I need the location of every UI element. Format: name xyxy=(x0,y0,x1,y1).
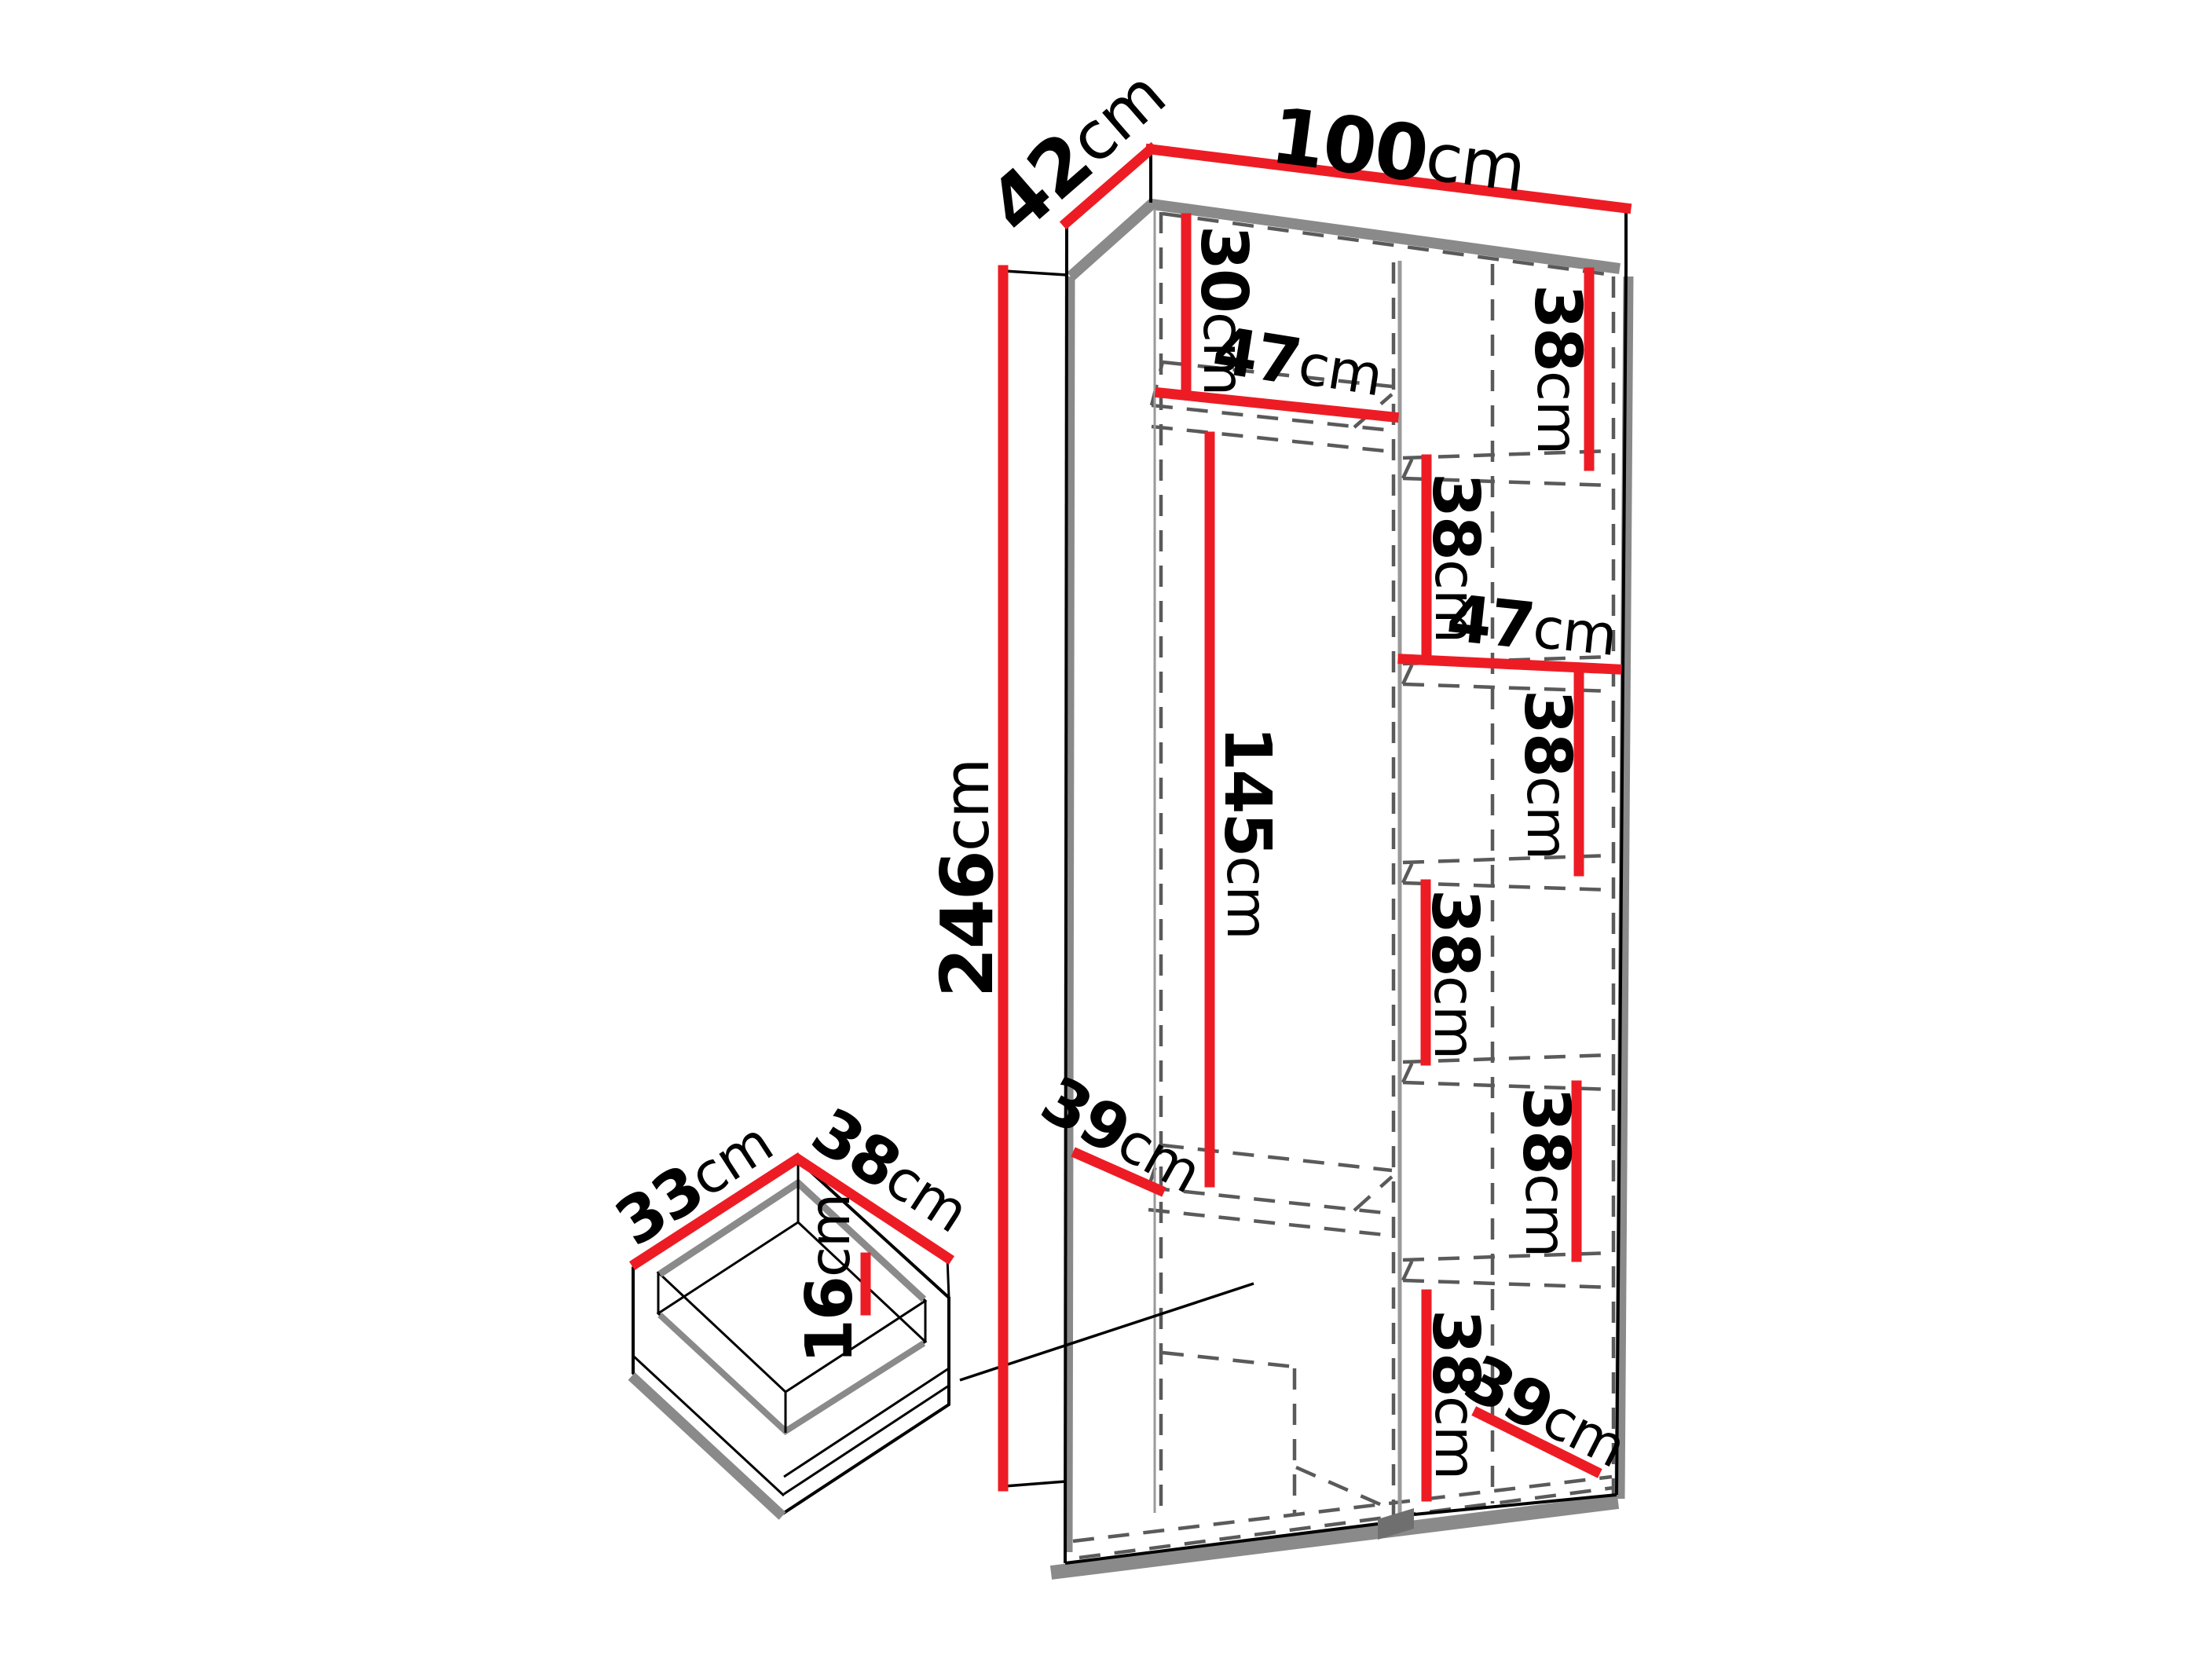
drawer-slot-diag xyxy=(1296,1467,1389,1508)
wardrobe-dimension-diagram: 42cm 100cm 246cm 30cm 47cm 145cm 39cm 38… xyxy=(0,0,2212,1659)
label-height-246: 246cm xyxy=(925,759,1009,998)
label-hanging-height-145: 145cm xyxy=(1210,726,1285,939)
height-witness-top xyxy=(1005,271,1067,275)
label-left-bottom-39: 39cm xyxy=(1029,1062,1214,1210)
left-outer-edge xyxy=(1065,222,1067,1563)
drawer-slot-top xyxy=(1163,1353,1295,1367)
bottom-shelf-diag-right xyxy=(1354,1177,1392,1210)
top-shelf-front-b xyxy=(1152,427,1392,452)
diagram-page: 42cm 100cm 246cm 30cm 47cm 145cm 39cm 38… xyxy=(0,0,2212,1659)
label-cell3-38: 38cm xyxy=(1511,690,1585,859)
height-witness-bottom xyxy=(1005,1481,1065,1486)
bottom-shadow xyxy=(1051,1502,1618,1573)
bottom-shelf-front-b xyxy=(1148,1210,1392,1236)
label-cell4-38: 38cm xyxy=(1418,889,1492,1059)
left-wall-inner-edge xyxy=(1068,276,1071,1552)
ceiling-front-edge xyxy=(1071,204,1620,276)
label-cell1-38: 38cm xyxy=(1521,284,1595,454)
label-width-100: 100cm xyxy=(1266,91,1531,213)
label-cell5-38: 38cm xyxy=(1509,1087,1584,1257)
label-drawer-height-16: 16cm xyxy=(793,1194,867,1364)
